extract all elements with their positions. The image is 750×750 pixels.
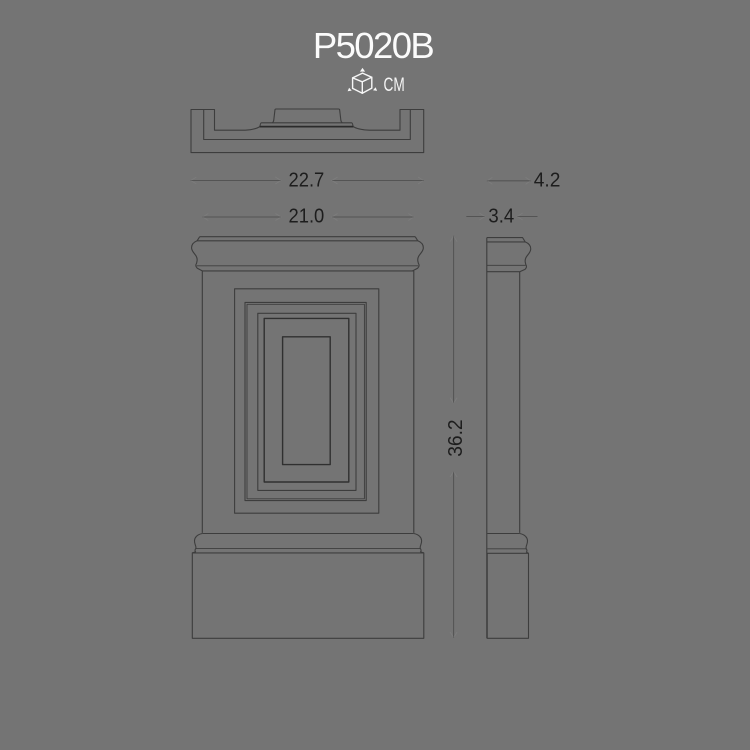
svg-text:21.0: 21.0 <box>289 206 325 228</box>
svg-text:P5020B: P5020B <box>313 25 434 66</box>
svg-text:CM: CM <box>384 74 405 96</box>
svg-text:4.2: 4.2 <box>534 169 561 191</box>
svg-text:22.7: 22.7 <box>289 170 325 192</box>
svg-text:36.2: 36.2 <box>445 419 467 456</box>
svg-text:3.4: 3.4 <box>488 206 514 228</box>
